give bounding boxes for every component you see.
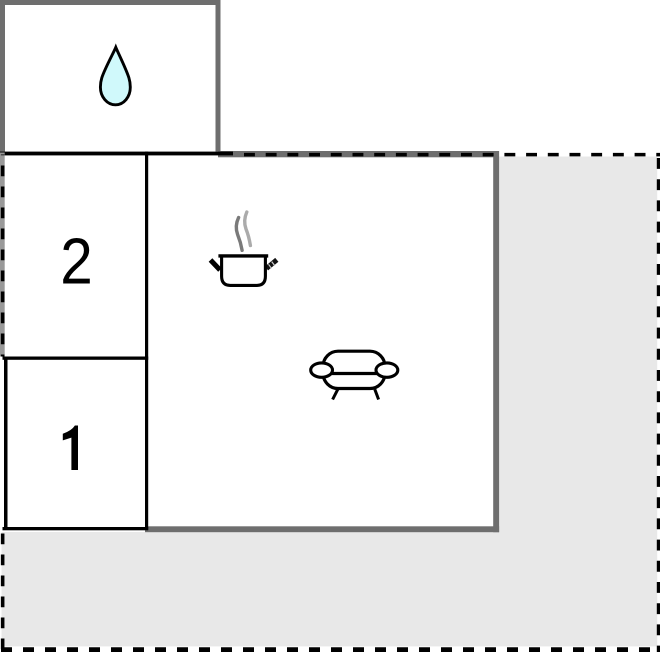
svg-text:2: 2	[60, 225, 93, 298]
